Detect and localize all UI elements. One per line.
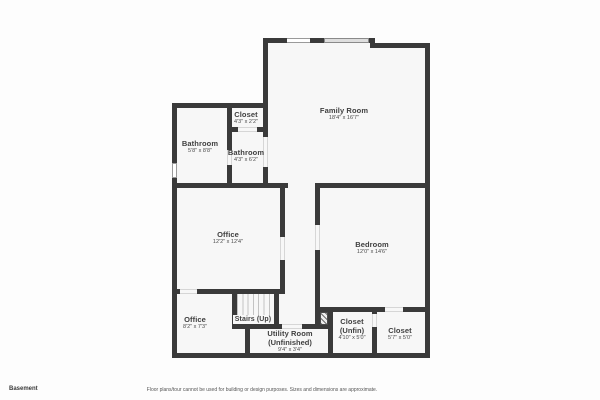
wall-segment [245, 329, 250, 358]
door-opening [280, 237, 285, 260]
door-opening [263, 137, 268, 167]
window [287, 38, 310, 43]
disclaimer-text: Floor plans/tour cannot be used for buil… [147, 387, 377, 393]
room-area-bathroom-block [172, 103, 268, 187]
wall-segment [315, 183, 430, 188]
wall-segment [172, 103, 177, 358]
door-opening [180, 289, 197, 294]
door-opening [282, 324, 302, 329]
room-area-lower-block [172, 183, 430, 358]
room-area-family-left [263, 38, 375, 187]
floor-name-label: Basement [9, 386, 38, 392]
wall-segment [370, 43, 430, 48]
stairs-treads [237, 294, 274, 324]
door-opening [227, 150, 232, 165]
floor-plan: Closet 4'3" x 2'2" Bathroom 5'8" x 8'8" … [0, 0, 600, 400]
wall-segment [172, 353, 430, 358]
door-opening [238, 127, 257, 132]
door-opening [315, 225, 320, 250]
wall-segment [172, 103, 268, 108]
wall-segment [328, 312, 333, 358]
hatch-chase [320, 312, 328, 325]
room-area-family-right [370, 43, 430, 187]
door-opening [372, 314, 377, 327]
wall-segment [227, 108, 232, 184]
door-opening [385, 307, 403, 312]
window [172, 163, 177, 178]
wall-segment [172, 183, 288, 188]
window [324, 38, 369, 43]
